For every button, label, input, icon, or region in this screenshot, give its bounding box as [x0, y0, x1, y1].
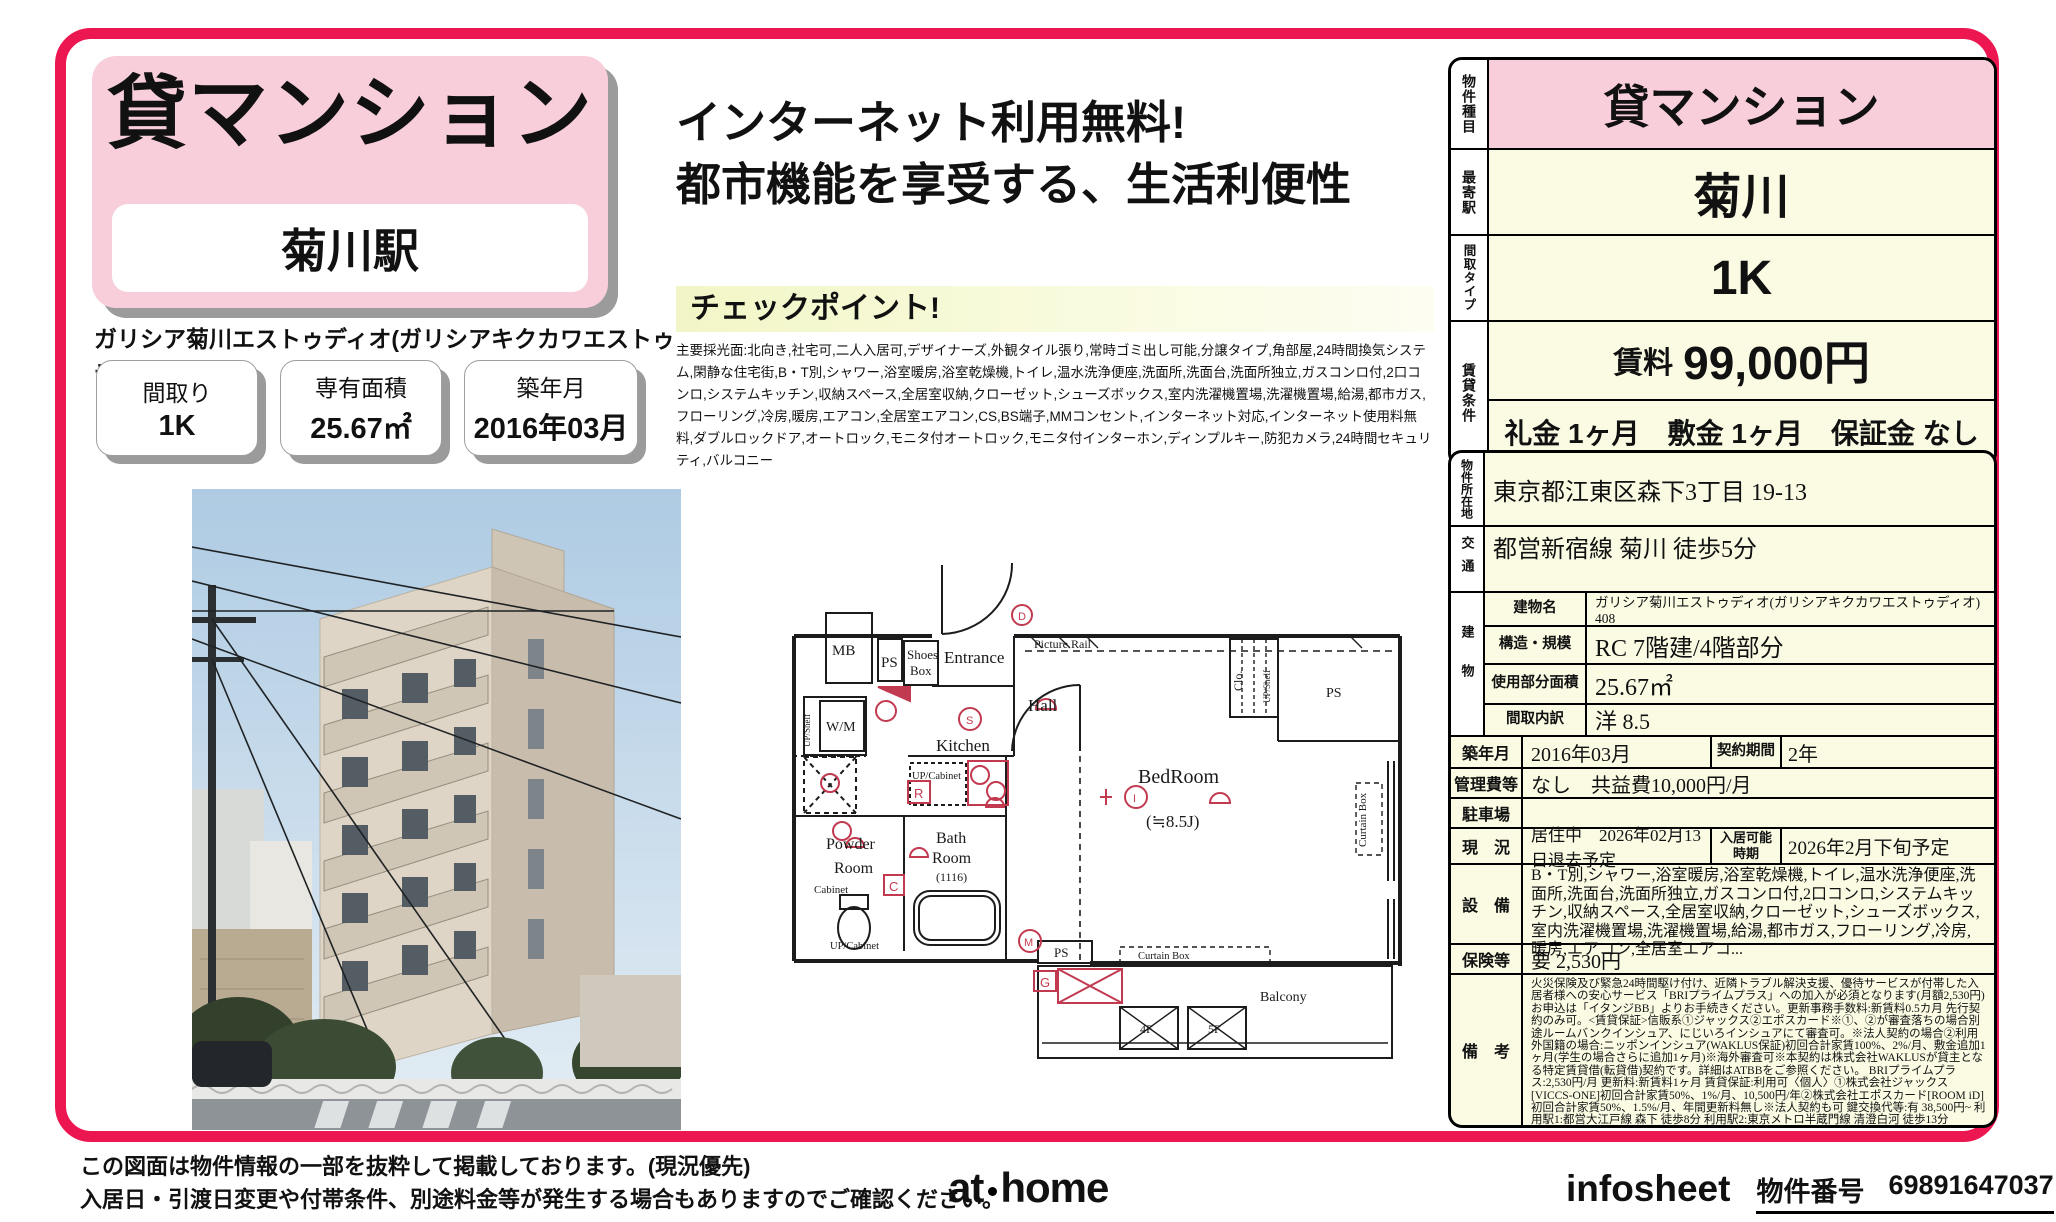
property-type-title: 貸マンション: [92, 70, 608, 158]
catch-copy-line1: インターネット利用無料!: [676, 92, 1446, 154]
rent-label: 賃料: [1613, 338, 1673, 382]
management-fee-label: 管理費等: [1451, 769, 1523, 797]
contract-label: 契約期間: [1710, 737, 1782, 767]
building-label: 建物: [1451, 593, 1483, 735]
movein-label: 入居可能 時期: [1710, 829, 1782, 863]
management-fee-value: なし 共益費10,000円/月: [1523, 769, 1994, 797]
building-name-label: 建物名: [1483, 593, 1587, 625]
layout-type-value: 1K: [1489, 236, 1994, 320]
plan-d-mark: D: [1018, 611, 1026, 623]
plan-4f-label: 4F: [1140, 1022, 1153, 1036]
row-layout-detail: 間取内訳 洋 8.5: [1483, 703, 1994, 735]
plan-upcabinet2-label: UP/Cabinet: [830, 941, 879, 952]
footer-notice-line1: この図面は物件情報の一部を抜粋して掲載しております。(現況優先): [80, 1150, 1004, 1183]
plan-shoes-label1: Shoes: [907, 647, 938, 662]
plan-balcony-label: Balcony: [1260, 990, 1307, 1005]
building-photo: [192, 489, 681, 1130]
infosheet-brand: infosheet: [1566, 1168, 1730, 1210]
area-value: 25.67㎡: [1587, 665, 1994, 703]
rent-amount: 賃料 99,000円: [1489, 322, 1994, 401]
row-equipment: 設 備 B・T別,シャワー,浴室暖房,浴室乾燥機,トイレ,温水洗浄便座,洗面所,…: [1451, 863, 1994, 943]
station-name: 菊川駅: [112, 204, 588, 292]
notes-label: 備 考: [1451, 975, 1523, 1125]
plan-curtainbox-h-label: Curtain Box: [1138, 951, 1190, 962]
plan-bedroom-size: (≒8.5J): [1146, 812, 1199, 831]
row-insurance: 保険等 要 2,530円: [1451, 943, 1994, 973]
plan-mb-label: MB: [832, 643, 855, 659]
building-subtable: 建物名 ガリシア菊川エストゥディオ(ガリシアキクカワエストゥディオ) 408 構…: [1483, 593, 1994, 735]
plan-kitchen-label: Kitchen: [936, 736, 990, 755]
structure-label: 構造・規模: [1483, 627, 1587, 663]
row-built: 築年月 2016年03月 契約期間 2年: [1451, 735, 1994, 767]
access-label: 交通: [1451, 527, 1485, 591]
built-label: 築年月: [1451, 737, 1523, 767]
row-nearest-station: 最寄駅 菊川: [1451, 148, 1994, 234]
nearest-station-value: 菊川: [1489, 150, 1994, 234]
layout-detail-label: 間取内訳: [1483, 705, 1587, 735]
checkpoint-text: 主要採光面:北向き,社宅可,二人入居可,デザイナーズ,外観タイル張り,常時ゴミ出…: [676, 340, 1432, 472]
rent-value: 99,000円: [1683, 327, 1870, 393]
rental-terms-values: 賃料 99,000円 礼金 1ヶ月 敷金 1ヶ月 保証金 なし: [1489, 322, 1994, 464]
plan-upshelf-label: UP/Shelf: [802, 714, 812, 747]
plan-bedroom-label: BedRoom: [1138, 766, 1220, 788]
row-current-status: 現 況 居住中 2026年02月13日退去予定 入居可能 時期 2026年2月下…: [1451, 827, 1994, 863]
structure-value: RC 7階建/4階部分: [1587, 627, 1994, 663]
plan-5f-label: 5F: [1208, 1022, 1221, 1036]
area-label: 使用部分面積: [1483, 665, 1587, 703]
summary-table: 物件種目 貸マンション 最寄駅 菊川 間取タイプ 1K 賃貸条件 賃料 99,0…: [1448, 57, 1997, 467]
plan-upshelf2-label: UP/Shelf: [1262, 670, 1272, 703]
plan-c-mark: C: [889, 879, 898, 894]
rental-terms-label: 賃貸条件: [1451, 322, 1489, 464]
row-management-fee: 管理費等 なし 共益費10,000円/月: [1451, 767, 1994, 797]
catch-copy-line2: 都市機能を享受する、生活利便性: [676, 154, 1446, 216]
catch-copy: インターネット利用無料! 都市機能を享受する、生活利便性: [676, 92, 1446, 216]
plan-shoes-label2: Box: [910, 663, 932, 678]
row-building: 建物 建物名 ガリシア菊川エストゥディオ(ガリシアキクカワエストゥディオ) 40…: [1451, 591, 1994, 735]
plan-entrance-label: Entrance: [944, 648, 1004, 667]
contract-value: 2年: [1782, 737, 1994, 767]
building-photo-image: [192, 489, 681, 1130]
plan-wm-label: W/M: [826, 720, 856, 735]
current-status-value: 居住中 2026年02月13日退去予定: [1523, 829, 1710, 863]
access-value: 都営新宿線 菊川 徒歩5分: [1485, 527, 1994, 591]
current-status-label: 現 況: [1451, 829, 1523, 863]
building-name-value: ガリシア菊川エストゥディオ(ガリシアキクカワエストゥディオ) 408: [1587, 593, 1994, 625]
plan-picture-rail-label: Picture Rail: [1034, 637, 1092, 651]
equipment-value: B・T別,シャワー,浴室暖房,浴室乾燥機,トイレ,温水洗浄便座,洗面所,洗面台,…: [1523, 865, 1994, 943]
row-layout-type: 間取タイプ 1K: [1451, 234, 1994, 320]
plan-s-mark: S: [966, 715, 973, 727]
parking-label: 駐車場: [1451, 799, 1523, 827]
address-value: 東京都江東区森下3丁目 19-13: [1485, 453, 1994, 525]
insurance-value: 要 2,530円: [1523, 945, 1994, 973]
layout-type-label: 間取タイプ: [1451, 236, 1489, 320]
address-label: 物件所在地: [1451, 453, 1485, 525]
plan-m-mark: M: [1024, 937, 1033, 949]
plan-g-mark: G: [1040, 975, 1050, 990]
plan-curtainbox-v-label: Curtain Box: [1357, 792, 1369, 847]
summary-badges: 間取り 1K 専有面積 25.67㎡ 築年月 2016年03月: [96, 360, 638, 456]
row-area: 使用部分面積 25.67㎡: [1483, 663, 1994, 703]
plan-ps3-label: PS: [1054, 945, 1068, 960]
row-address: 物件所在地 東京都江東区森下3丁目 19-13: [1451, 453, 1994, 525]
plan-upcabinet-label: UP/Cabinet: [912, 771, 961, 782]
equipment-label: 設 備: [1451, 865, 1523, 943]
notes-value: 火災保険及び緊急24時間駆け付け、近隣トラブル解決支援、優待サービスが付帯した入…: [1523, 975, 1994, 1125]
athome-logo: at home: [948, 1164, 1108, 1212]
property-type-panel: 貸マンション 菊川駅: [92, 56, 608, 308]
plan-r-mark: R: [914, 786, 923, 801]
detail-table: 物件所在地 東京都江東区森下3丁目 19-13 交通 都営新宿線 菊川 徒歩5分…: [1448, 450, 1997, 1128]
badge-built: 築年月 2016年03月: [464, 360, 638, 456]
badge-area: 専有面積 25.67㎡: [280, 360, 442, 456]
plan-bath-label2: Room: [932, 850, 972, 867]
checkpoint-heading: チェックポイント!: [676, 286, 1434, 332]
property-type-label: 物件種目: [1451, 60, 1489, 148]
movein-value: 2026年2月下旬予定: [1782, 829, 1994, 863]
plan-ps-label: PS: [881, 655, 898, 671]
floor-plan-drawing: MB PS Shoes Box Entrance Hall S Kitchen …: [790, 551, 1406, 1115]
plan-bath-label1: Bath: [936, 830, 966, 847]
insurance-label: 保険等: [1451, 945, 1523, 973]
plan-closet-label: Clo.: [1231, 671, 1245, 691]
plan-cabinet-label: Cabinet: [814, 884, 848, 896]
nearest-station-label: 最寄駅: [1451, 150, 1489, 234]
row-building-name: 建物名 ガリシア菊川エストゥディオ(ガリシアキクカワエストゥディオ) 408: [1483, 593, 1994, 625]
plan-ps2-label: PS: [1326, 686, 1342, 701]
floor-plan: MB PS Shoes Box Entrance Hall S Kitchen …: [790, 551, 1406, 1115]
infosheet-footer: infosheet 物件番号 69891647037: [1566, 1168, 2054, 1214]
row-notes: 備 考 火災保険及び緊急24時間駆け付け、近隣トラブル解決支援、優待サービスが付…: [1451, 973, 1994, 1125]
row-structure: 構造・規模 RC 7階建/4階部分: [1483, 625, 1994, 663]
infosheet-page: 貸マンション 菊川駅 ガリシア菊川エストゥディオ(ガリシアキクカワエストゥディオ…: [0, 0, 2056, 1222]
footer-notice: この図面は物件情報の一部を抜粋して掲載しております。(現況優先) 入居日・引渡日…: [80, 1150, 1004, 1216]
plan-hall-label: Hall: [1028, 696, 1058, 715]
plan-powder-label2: Room: [834, 860, 874, 877]
plan-powder-label1: Powder: [826, 836, 876, 853]
row-property-type: 物件種目 貸マンション: [1451, 60, 1994, 148]
built-value: 2016年03月: [1523, 737, 1710, 767]
footer-notice-line2: 入居日・引渡日変更や付帯条件、別途料金等が発生する場合もありますのでご確認くださ…: [80, 1183, 1004, 1216]
badge-layout: 間取り 1K: [96, 360, 258, 456]
plan-i-mark: I: [1133, 793, 1136, 805]
property-type-value: 貸マンション: [1489, 60, 1994, 148]
layout-detail-value: 洋 8.5: [1587, 705, 1994, 735]
row-access: 交通 都営新宿線 菊川 徒歩5分: [1451, 525, 1994, 591]
row-rental-terms: 賃貸条件 賃料 99,000円 礼金 1ヶ月 敷金 1ヶ月 保証金 なし: [1451, 320, 1994, 464]
athome-logo-dot: [988, 1187, 997, 1196]
plan-bath-size: (1116): [936, 870, 967, 884]
property-number: 物件番号 69891647037: [1756, 1170, 2053, 1214]
